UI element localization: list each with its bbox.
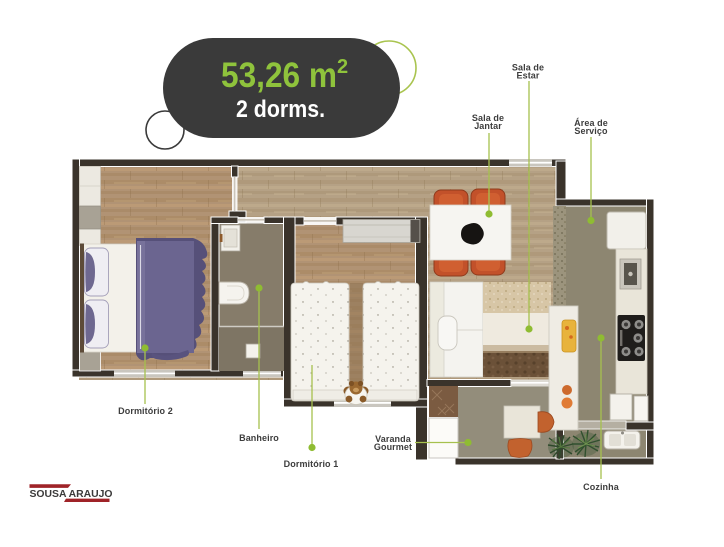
svg-text:Serviço: Serviço <box>574 126 608 136</box>
svg-text:53,26 m: 53,26 m <box>221 56 337 95</box>
svg-text:SOUSA ARAUJO: SOUSA ARAUJO <box>30 489 113 500</box>
svg-text:Jantar: Jantar <box>474 121 502 131</box>
svg-text:Cozinha: Cozinha <box>583 482 620 492</box>
svg-text:Dormitório 2: Dormitório 2 <box>118 406 173 416</box>
svg-text:Gourmet: Gourmet <box>374 442 412 452</box>
svg-text:Estar: Estar <box>516 71 539 81</box>
svg-text:2 dorms.: 2 dorms. <box>236 96 325 123</box>
svg-text:Banheiro: Banheiro <box>239 433 279 443</box>
svg-text:Dormitório 1: Dormitório 1 <box>284 459 339 469</box>
svg-text:2: 2 <box>337 56 348 78</box>
